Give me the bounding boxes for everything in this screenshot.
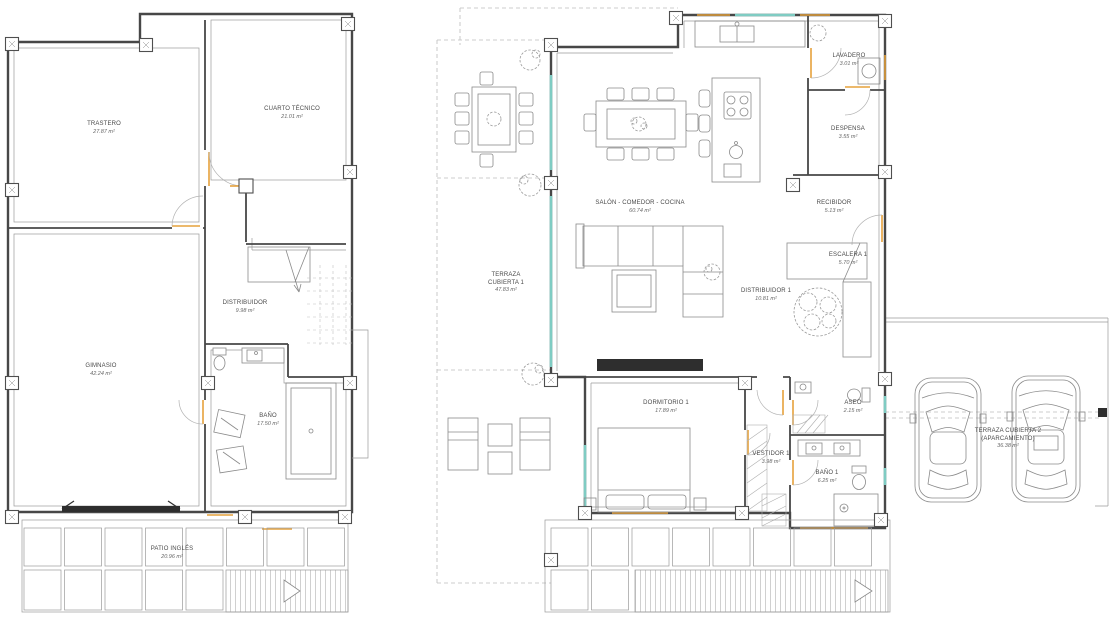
basement-outer-wall (8, 14, 352, 512)
room-name-line2: (APARCAMIENTO) (981, 436, 1035, 444)
room-label-dormitorio-1: DORMITORIO 1 17.89 m² (643, 400, 689, 414)
room-area: 9.98 m² (236, 308, 255, 315)
room-label-recibidor: RECIBIDOR 5.13 m² (817, 200, 852, 214)
room-area: 20.96 m² (161, 554, 183, 561)
room-name: RECIBIDOR (817, 200, 852, 208)
room-label-aseo: ASEO 2.15 m² (844, 400, 863, 414)
room-name: TRASTERO (87, 121, 121, 129)
room-label-bano: BAÑO 17.50 m² (257, 413, 279, 427)
room-label-distribuidor: DISTRIBUIDOR 9.98 m² (223, 300, 268, 314)
room-area: 3.98 m² (762, 459, 781, 466)
basement-plan (6, 14, 369, 612)
room-label-lavadero: LAVADERO 3.01 m² (833, 53, 866, 67)
room-label-gimnasio: GIMNASIO 42.24 m² (85, 363, 116, 377)
terrace-loungers (448, 418, 550, 474)
room-label-bano-1: BAÑO 1 6.25 m² (816, 470, 839, 484)
basement-stairs (248, 247, 352, 345)
room-label-vestidor-1: VESTIDOR 1 3.98 m² (752, 451, 789, 465)
room-area: 21.01 m² (281, 114, 303, 121)
basement-pillars (6, 18, 357, 524)
room-name: BAÑO 1 (816, 470, 839, 478)
ground-pillars (545, 12, 892, 567)
room-area: 60.74 m² (629, 208, 651, 215)
basement-glazing-band (62, 501, 180, 512)
room-area: 3.01 m² (840, 61, 859, 68)
room-area: 17.89 m² (655, 408, 677, 415)
tv-unit (597, 359, 703, 371)
room-name: DORMITORIO 1 (643, 400, 689, 408)
room-area: 2.15 m² (844, 408, 863, 415)
room-label-cuarto-tecnico: CUARTO TÉCNICO 21.01 m² (264, 106, 320, 120)
room-label-salon: SALÓN - COMEDOR - COCINA 60.74 m² (595, 200, 684, 214)
dining-table (584, 88, 698, 160)
room-area: 42.24 m² (90, 371, 112, 378)
aseo-fixtures (795, 382, 870, 402)
room-name: SALÓN - COMEDOR - COCINA (595, 200, 684, 208)
room-area: 10.81 m² (755, 296, 777, 303)
room-name: DESPENSA (831, 126, 865, 134)
room-name: TERRAZA (491, 272, 520, 280)
room-label-trastero: TRASTERO 27.87 m² (87, 121, 121, 135)
floor-plan-drawing (0, 0, 1120, 624)
room-name: CUARTO TÉCNICO (264, 106, 320, 114)
room-area: 27.87 m² (93, 129, 115, 136)
room-name: ASEO (844, 400, 861, 408)
room-label-distribuidor-1: DISTRIBUIDOR 1 10.81 m² (741, 288, 791, 302)
room-label-escalera-1: ESCALERA 1 5.70 m² (829, 252, 867, 266)
room-area: 5.70 m² (839, 260, 858, 267)
room-name-line2: CUBIERTA 1 (488, 280, 524, 288)
room-name: ESCALERA 1 (829, 252, 867, 260)
room-label-terraza-cubierta-1: TERRAZA CUBIERTA 1 47.83 m² (488, 272, 524, 294)
room-name: LAVADERO (833, 53, 866, 61)
kitchen-fixtures (695, 21, 805, 182)
room-area: 17.50 m² (257, 421, 279, 428)
room-area: 36.38 m² (997, 443, 1019, 450)
room-label-terraza-cubierta-2: TERRAZA CUBIERTA 2 (APARCAMIENTO) 36.38 … (975, 428, 1042, 450)
sofa-group (576, 224, 723, 317)
basement-doors (172, 152, 292, 529)
basement-patio (22, 520, 348, 612)
ground-patio (545, 520, 890, 612)
room-name: TERRAZA CUBIERTA 2 (975, 428, 1042, 436)
room-name: DISTRIBUIDOR (223, 300, 268, 308)
room-label-patio-ingles: PATIO INGLÉS 20.96 m² (151, 546, 194, 560)
terrace-dining (455, 72, 533, 167)
bedroom-furniture (584, 428, 706, 512)
room-area: 47.83 m² (495, 287, 517, 294)
ground-floor-plan (437, 8, 1108, 612)
room-area: 5.13 m² (825, 208, 844, 215)
room-name: PATIO INGLÉS (151, 546, 194, 554)
room-name: DISTRIBUIDOR 1 (741, 288, 791, 296)
room-area: 6.25 m² (818, 478, 837, 485)
towel-icon (214, 410, 247, 473)
room-name: VESTIDOR 1 (752, 451, 789, 459)
room-label-despensa: DESPENSA 3.55 m² (831, 126, 865, 140)
stairwell-plant-icon (794, 288, 842, 336)
room-area: 3.55 m² (839, 134, 858, 141)
room-name: GIMNASIO (85, 363, 116, 371)
floor-plan-canvas: TRASTERO 27.87 m² CUARTO TÉCNICO 21.01 m… (0, 0, 1120, 624)
room-name: BAÑO (259, 413, 277, 421)
